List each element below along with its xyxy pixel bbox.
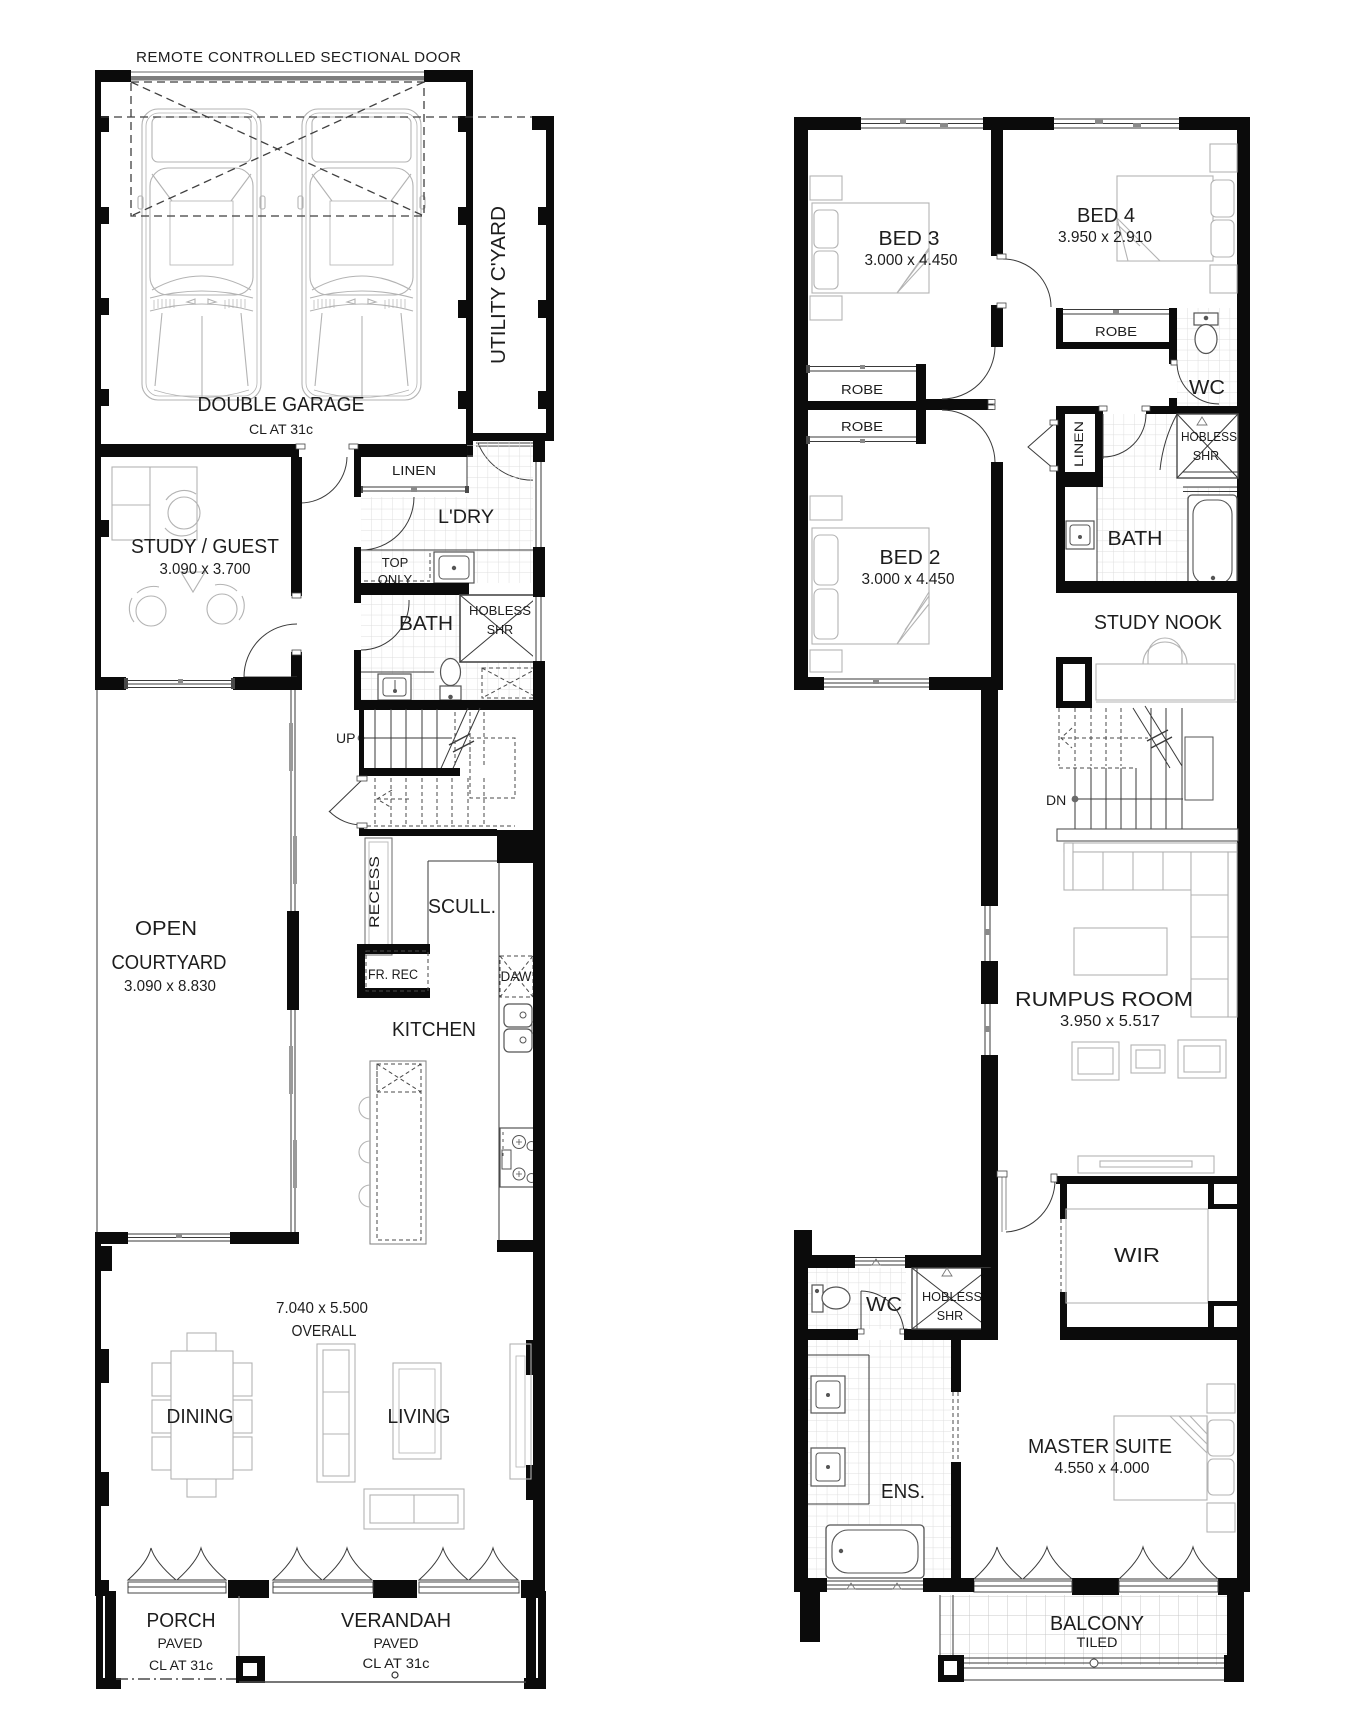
svg-text:LIVING: LIVING — [388, 1405, 451, 1428]
svg-text:WC: WC — [1189, 377, 1225, 399]
svg-text:HOBLESS: HOBLESS — [469, 604, 531, 618]
svg-text:3.090 x 8.830: 3.090 x 8.830 — [124, 978, 216, 995]
svg-text:OPEN: OPEN — [135, 917, 197, 940]
svg-text:KITCHEN: KITCHEN — [392, 1018, 476, 1041]
svg-text:WIR: WIR — [1114, 1245, 1160, 1267]
svg-text:HOBLESS: HOBLESS — [922, 1290, 982, 1304]
svg-text:CL AT 31c: CL AT 31c — [363, 1656, 430, 1671]
svg-text:RECESS: RECESS — [367, 856, 382, 928]
svg-text:SCULL.: SCULL. — [428, 896, 496, 918]
svg-text:BED 2: BED 2 — [880, 546, 941, 569]
svg-text:STUDY / GUEST: STUDY / GUEST — [131, 535, 279, 558]
svg-text:DOUBLE GARAGE: DOUBLE GARAGE — [198, 393, 365, 416]
svg-text:4.550 x 4.000: 4.550 x 4.000 — [1055, 1460, 1150, 1477]
svg-text:LINEN: LINEN — [1072, 421, 1086, 467]
svg-text:BATH: BATH — [399, 613, 453, 635]
svg-text:OVERALL: OVERALL — [292, 1323, 357, 1340]
svg-text:CL AT 31c: CL AT 31c — [149, 1658, 213, 1673]
svg-text:RUMPUS ROOM: RUMPUS ROOM — [1015, 988, 1193, 1011]
svg-text:UP: UP — [336, 730, 355, 746]
svg-text:BALCONY: BALCONY — [1050, 1612, 1144, 1635]
svg-text:TOP: TOP — [382, 555, 409, 570]
svg-text:LINEN: LINEN — [392, 463, 436, 478]
svg-text:BATH: BATH — [1108, 528, 1163, 550]
svg-text:3.950 x 2.910: 3.950 x 2.910 — [1058, 229, 1152, 246]
svg-text:L'DRY: L'DRY — [438, 507, 494, 528]
svg-text:SHR: SHR — [937, 1309, 963, 1323]
svg-text:3.000 x 4.450: 3.000 x 4.450 — [865, 252, 958, 269]
svg-text:BED 3: BED 3 — [879, 227, 940, 250]
svg-text:7.040 x 5.500: 7.040 x 5.500 — [276, 1300, 368, 1317]
svg-text:DN: DN — [1046, 792, 1066, 808]
svg-text:REMOTE CONTROLLED SECTIONAL DO: REMOTE CONTROLLED SECTIONAL DOOR — [136, 49, 461, 66]
svg-text:HOBLESS: HOBLESS — [1181, 430, 1237, 444]
svg-text:VERANDAH: VERANDAH — [341, 1609, 451, 1632]
svg-text:ROBE: ROBE — [1095, 324, 1137, 339]
svg-text:PORCH: PORCH — [147, 1609, 216, 1632]
svg-text:3.000 x 4.450: 3.000 x 4.450 — [862, 571, 955, 588]
svg-text:3.090 x 3.700: 3.090 x 3.700 — [160, 561, 251, 578]
svg-text:ROBE: ROBE — [841, 419, 883, 434]
svg-text:UTILITY C'YARD: UTILITY C'YARD — [487, 206, 510, 364]
svg-text:FR. REC: FR. REC — [368, 967, 418, 982]
svg-text:STUDY NOOK: STUDY NOOK — [1094, 611, 1222, 634]
svg-text:ROBE: ROBE — [841, 382, 883, 397]
svg-text:ENS.: ENS. — [881, 1481, 925, 1503]
svg-text:TILED: TILED — [1077, 1635, 1118, 1650]
svg-text:WC: WC — [866, 1294, 902, 1316]
svg-text:PAVED: PAVED — [158, 1636, 203, 1651]
svg-text:SHR: SHR — [487, 623, 513, 637]
svg-text:3.950 x 5.517: 3.950 x 5.517 — [1060, 1013, 1160, 1030]
svg-text:BED 4: BED 4 — [1077, 204, 1135, 227]
svg-text:PAVED: PAVED — [374, 1636, 419, 1651]
svg-text:CL AT 31c: CL AT 31c — [249, 421, 313, 437]
svg-text:MASTER SUITE: MASTER SUITE — [1028, 1435, 1172, 1458]
svg-text:DINING: DINING — [167, 1405, 234, 1428]
svg-text:DAW: DAW — [501, 969, 532, 984]
svg-text:COURTYARD: COURTYARD — [112, 951, 227, 974]
svg-text:SHR: SHR — [1193, 449, 1219, 463]
